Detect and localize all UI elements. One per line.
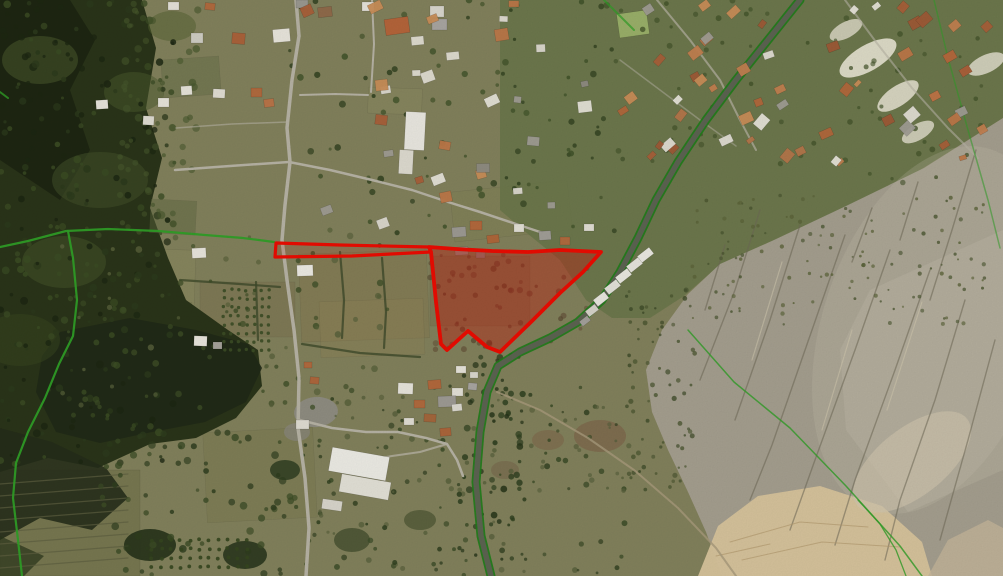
photo-grain-overlay — [0, 0, 1003, 576]
satellite-map-canvas[interactable] — [0, 0, 1003, 576]
satellite-map-view[interactable] — [0, 0, 1003, 576]
